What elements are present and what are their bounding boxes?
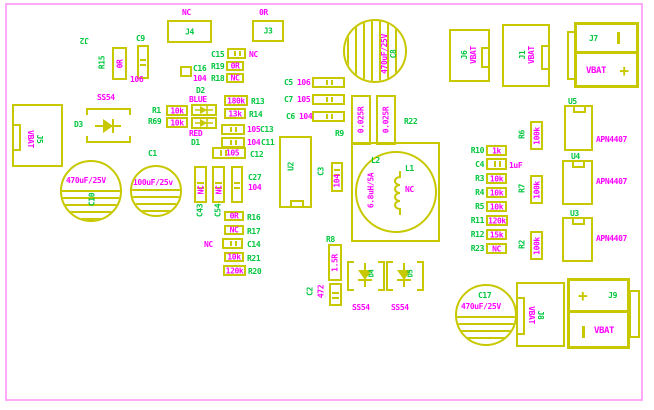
c5-value: 106 bbox=[297, 78, 310, 87]
r20-body: 120k bbox=[223, 265, 246, 276]
c6-body bbox=[312, 111, 345, 122]
j6-label: J6 VBAT bbox=[460, 37, 478, 73]
d5-part: SS54 bbox=[391, 303, 409, 312]
r17-refdes: R17 bbox=[247, 227, 260, 236]
l2-value: 6.8uH/5A bbox=[367, 169, 376, 213]
r7-body: 100k bbox=[530, 175, 543, 204]
r20-value: 120k bbox=[226, 266, 244, 275]
c10-body: 470uF/25V C10 bbox=[60, 160, 122, 222]
d4-part: SS54 bbox=[352, 303, 370, 312]
u4-part: APN4407 bbox=[596, 177, 627, 186]
c4-refdes: C4 bbox=[464, 160, 484, 169]
r23-refdes: R23 bbox=[464, 244, 484, 253]
j3-refdes: J3 bbox=[264, 27, 273, 36]
plus-terminal: + bbox=[619, 63, 629, 79]
led-diode-icon bbox=[195, 119, 213, 127]
c17-refdes: C17 bbox=[478, 291, 491, 300]
c9-value: 106 bbox=[130, 75, 143, 84]
c16-refdes: C16 bbox=[193, 64, 206, 73]
led-diode-icon bbox=[195, 106, 213, 114]
d2-body bbox=[191, 104, 217, 116]
r12-body: 15k bbox=[486, 229, 507, 240]
r18-value: NC bbox=[231, 74, 240, 83]
r16-value: 0R bbox=[230, 212, 239, 221]
j9-body: + J9 VBAT bbox=[567, 278, 630, 349]
d5-refdes: D5 bbox=[406, 270, 415, 278]
c9-refdes: C9 bbox=[136, 34, 145, 43]
r2-value: 100k bbox=[532, 237, 541, 255]
j5-label: J5 VBAT bbox=[26, 121, 44, 157]
r15-value: 0R bbox=[115, 59, 124, 68]
d4-body: D4 bbox=[347, 261, 385, 291]
c3-refdes: C3 bbox=[317, 152, 326, 192]
d3-body bbox=[86, 108, 131, 143]
c11-value: 104 bbox=[247, 138, 260, 147]
r13-value: 180k bbox=[227, 96, 245, 105]
j6-value: VBAT bbox=[469, 37, 478, 73]
r2-refdes: R2 bbox=[518, 225, 527, 265]
c15-refdes: C15 bbox=[211, 50, 224, 59]
c1-refdes: C1 bbox=[148, 149, 157, 158]
l1-value: NC bbox=[405, 185, 414, 194]
d1-refdes: D1 bbox=[191, 138, 200, 147]
c5-body bbox=[312, 77, 345, 88]
r69-body: 10k bbox=[166, 117, 188, 128]
u5-body bbox=[564, 105, 593, 151]
r18-body: NC bbox=[226, 73, 244, 83]
c5-refdes: C5 bbox=[284, 78, 293, 87]
c7-body bbox=[312, 94, 345, 105]
r4-refdes: R4 bbox=[464, 188, 484, 197]
d2-refdes: D2 bbox=[196, 86, 205, 95]
j7-value: VBAT bbox=[586, 67, 606, 76]
c14-refdes: C14 bbox=[247, 240, 260, 249]
c16-value: 104 bbox=[193, 74, 206, 83]
c12-value: 105 bbox=[226, 149, 239, 158]
pcb-silkscreen-board: J2 R15 0R C9 106 NC J4 0R J3 C15 NC R19 … bbox=[0, 0, 654, 410]
c16-body bbox=[180, 66, 192, 77]
c17-value: 470uF/25V bbox=[461, 302, 501, 311]
r23-value: NC bbox=[492, 244, 501, 253]
d3-part: SS54 bbox=[97, 93, 115, 102]
c15-value: NC bbox=[249, 50, 258, 59]
c11-refdes: C11 bbox=[261, 138, 274, 147]
u5-part: APN4407 bbox=[596, 135, 627, 144]
j6-refdes: J6 bbox=[460, 37, 469, 73]
r6-body: 100k bbox=[530, 121, 543, 150]
c2-value: 472 bbox=[317, 272, 326, 312]
r3-value: 10k bbox=[490, 174, 503, 183]
d2-value: BLUE bbox=[189, 95, 207, 104]
u3-part: APN4407 bbox=[596, 234, 627, 243]
r3-body: 10k bbox=[486, 173, 507, 184]
c7-refdes: C7 bbox=[284, 95, 293, 104]
c27-refdes: C27 bbox=[248, 173, 261, 182]
r12-refdes: R12 bbox=[464, 230, 484, 239]
c27-value: 104 bbox=[248, 183, 261, 192]
c12-body: 105 bbox=[212, 147, 246, 159]
c17-body: C17 470uF/25V bbox=[455, 284, 517, 346]
j4-note: NC bbox=[182, 8, 191, 17]
r12-value: 15k bbox=[490, 230, 503, 239]
electrolytic-hatch bbox=[132, 189, 180, 215]
c13-value: 105 bbox=[247, 125, 260, 134]
l1-refdes: L1 bbox=[405, 164, 414, 173]
r10-body: 1k bbox=[486, 145, 507, 156]
r21-body: 10k bbox=[224, 252, 244, 262]
c8-label: 470uF/25V C8 bbox=[380, 29, 398, 79]
r15-body: 0R bbox=[112, 47, 127, 80]
r16-refdes: R16 bbox=[247, 213, 260, 222]
r10-refdes: R10 bbox=[464, 146, 484, 155]
r22-value: 0.025R bbox=[382, 107, 391, 134]
j1-value: VBAT bbox=[527, 37, 536, 73]
r9-body: 0.025R bbox=[351, 95, 371, 145]
c27-body bbox=[231, 166, 243, 203]
u2-body bbox=[279, 136, 312, 208]
j4-body: J4 bbox=[167, 20, 212, 43]
r8-refdes: R8 bbox=[326, 235, 335, 244]
j1-label: J1 VBAT bbox=[518, 37, 536, 73]
r69-refdes: R69 bbox=[148, 117, 161, 126]
r7-value: 100k bbox=[532, 181, 541, 199]
r2-body: 100k bbox=[530, 231, 543, 260]
diode-icon bbox=[95, 117, 121, 135]
r14-value: 13k bbox=[228, 109, 241, 118]
r8-body: 1.5R bbox=[328, 244, 342, 281]
r1-refdes: R1 bbox=[152, 106, 161, 115]
u3-body bbox=[562, 217, 593, 262]
j7-refdes: J7 bbox=[589, 34, 598, 43]
c8-refdes: C8 bbox=[389, 29, 398, 79]
r3-refdes: R3 bbox=[464, 174, 484, 183]
r19-value: 0R bbox=[231, 62, 240, 71]
d1-value: RED bbox=[189, 129, 202, 138]
r21-refdes: R21 bbox=[247, 254, 260, 263]
c9-body bbox=[137, 45, 149, 79]
r4-body: 10k bbox=[486, 187, 507, 198]
d3-refdes: D3 bbox=[74, 120, 83, 129]
r5-value: 10k bbox=[490, 202, 503, 211]
r9-refdes: R9 bbox=[335, 129, 344, 138]
r21-value: 10k bbox=[227, 253, 240, 262]
r10-value: 1k bbox=[492, 146, 501, 155]
c3-value: 104 bbox=[333, 174, 342, 187]
c54-refdes: C54 bbox=[214, 191, 223, 231]
d1-body bbox=[191, 117, 217, 129]
c15-body bbox=[227, 48, 246, 59]
minus-terminal-icon bbox=[617, 32, 620, 44]
r7-refdes: R7 bbox=[518, 169, 527, 209]
r13-refdes: R13 bbox=[251, 97, 264, 106]
j4-refdes: J4 bbox=[185, 27, 194, 36]
electrolytic-hatch bbox=[457, 316, 515, 344]
j3-note: 0R bbox=[259, 8, 268, 17]
r22-body: 0.025R bbox=[376, 95, 396, 145]
u2-refdes: U2 bbox=[287, 147, 296, 187]
j8-value: VBAT bbox=[527, 297, 536, 333]
r11-body: 120k bbox=[486, 215, 508, 226]
c4-body bbox=[486, 158, 507, 170]
j2-refdes: J2 bbox=[80, 36, 89, 45]
r15-refdes: R15 bbox=[98, 43, 107, 83]
r69-value: 10k bbox=[170, 118, 183, 127]
c43-refdes: C43 bbox=[196, 191, 205, 231]
d4-refdes: D4 bbox=[367, 270, 376, 278]
l2-refdes: L2 bbox=[371, 156, 380, 165]
c6-value: 104 bbox=[299, 112, 312, 121]
r20-refdes: R20 bbox=[248, 267, 261, 276]
j3-body: J3 bbox=[252, 20, 284, 42]
c13-refdes: C13 bbox=[260, 125, 273, 134]
c7-value: 105 bbox=[297, 95, 310, 104]
r22-refdes: R22 bbox=[404, 117, 417, 126]
minus-terminal-icon bbox=[582, 326, 585, 338]
r14-refdes: R14 bbox=[249, 110, 262, 119]
j5-refdes: J5 bbox=[35, 121, 44, 157]
c3-body: 104 bbox=[331, 162, 343, 192]
c10-value: 470uF/25V bbox=[66, 176, 106, 185]
c10-refdes: C10 bbox=[88, 180, 97, 220]
c1-value: 100uF/25v bbox=[133, 178, 173, 187]
j8-label: J8 VBAT bbox=[527, 297, 545, 333]
j1-refdes: J1 bbox=[518, 37, 527, 73]
j9-value: VBAT bbox=[594, 327, 614, 336]
u4-body bbox=[562, 160, 593, 205]
r8-value: 1.5R bbox=[331, 254, 340, 272]
r18-refdes: R18 bbox=[211, 74, 224, 83]
r17-body: NC bbox=[224, 225, 244, 235]
r19-body: 0R bbox=[226, 61, 244, 71]
c14-value: NC bbox=[204, 240, 213, 249]
c12-refdes: C12 bbox=[250, 150, 263, 159]
c13-body bbox=[221, 124, 245, 135]
c1-body: 100uF/25v bbox=[130, 165, 182, 217]
r4-value: 10k bbox=[490, 188, 503, 197]
r1-body: 10k bbox=[166, 105, 188, 116]
r9-value: 0.025R bbox=[357, 107, 366, 134]
r17-value: NC bbox=[230, 226, 239, 235]
c14-body bbox=[222, 238, 243, 249]
r5-body: 10k bbox=[486, 201, 507, 212]
r11-value: 120k bbox=[488, 216, 506, 225]
c2-body bbox=[329, 283, 342, 306]
j9-refdes: J9 bbox=[608, 291, 617, 300]
d5-body: D5 bbox=[386, 261, 424, 291]
r5-refdes: R5 bbox=[464, 202, 484, 211]
r19-refdes: R19 bbox=[211, 62, 224, 71]
r16-body: 0R bbox=[224, 211, 244, 221]
r6-refdes: R6 bbox=[518, 115, 527, 155]
r14-body: 13k bbox=[224, 108, 246, 119]
c2-refdes: C2 bbox=[306, 272, 315, 312]
j8-refdes: J8 bbox=[536, 297, 545, 333]
coil-icon bbox=[391, 171, 403, 215]
r13-body: 180k bbox=[224, 95, 248, 106]
r6-value: 100k bbox=[532, 127, 541, 145]
j9-tab bbox=[629, 290, 640, 338]
r23-body: NC bbox=[486, 243, 507, 254]
r1-value: 10k bbox=[170, 106, 183, 115]
c6-refdes: C6 bbox=[286, 112, 295, 121]
c8-value: 470uF/25V bbox=[380, 29, 389, 79]
plus-terminal: + bbox=[578, 288, 588, 304]
j7-body: J7 VBAT + bbox=[574, 22, 639, 88]
j5-value: VBAT bbox=[26, 121, 35, 157]
r11-refdes: R11 bbox=[464, 216, 484, 225]
